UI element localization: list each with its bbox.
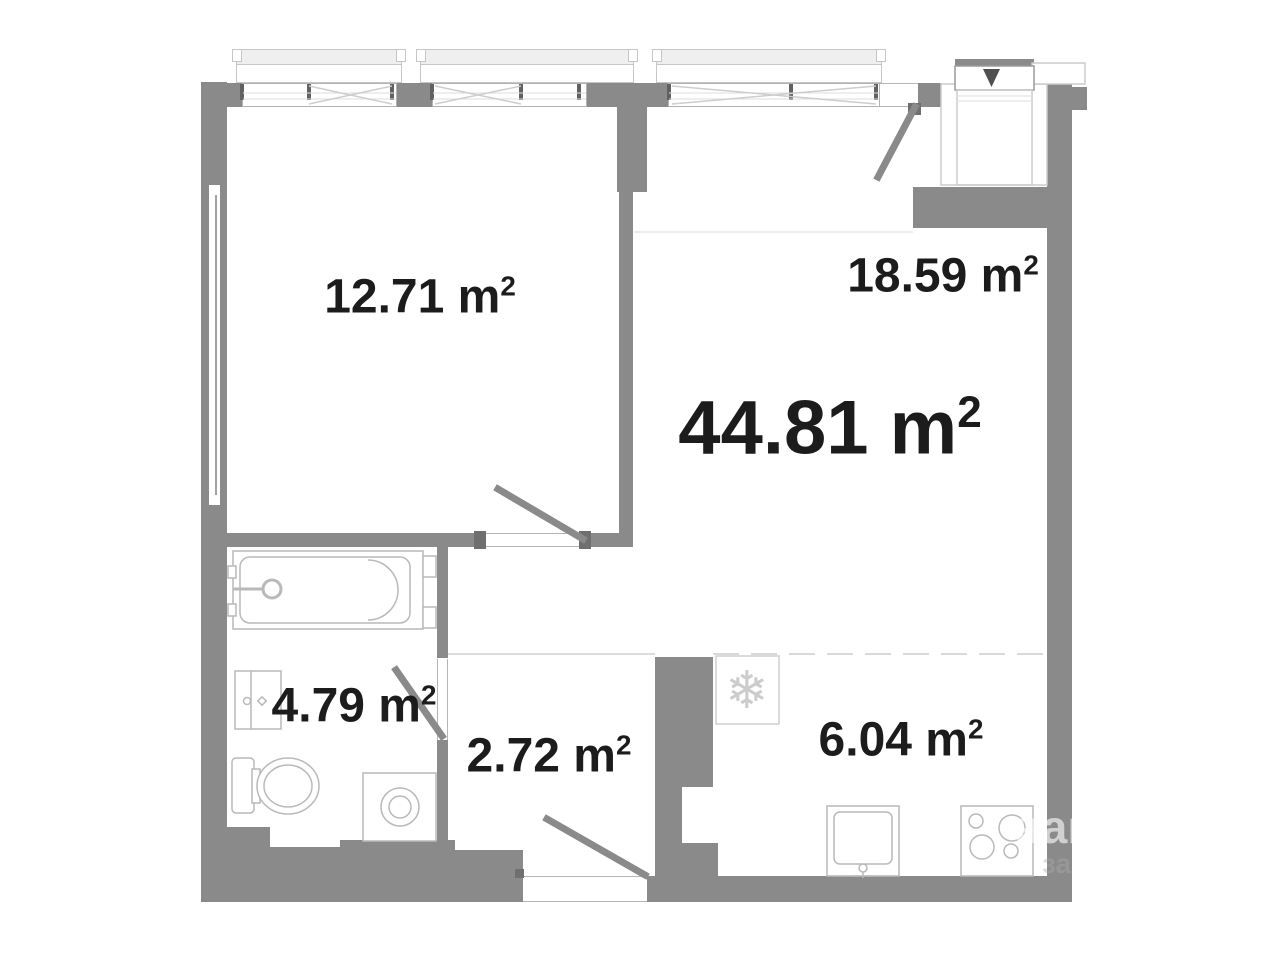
- watermark-fragment: за: [1042, 848, 1071, 880]
- kitchen-area-value: 6.04 m: [819, 714, 968, 767]
- hallway-area-sup: 2: [616, 730, 631, 761]
- hallway-area-label: 2.72 m2: [467, 729, 632, 784]
- kitchen-sink-icon: [827, 806, 899, 878]
- bedroom-area-label: 12.71 m2: [324, 270, 516, 325]
- toilet-icon: [232, 758, 319, 814]
- total-area-label: 44.81 m2: [678, 385, 981, 472]
- total-area-value: 44.81 m: [678, 386, 957, 471]
- bathroom-area-value: 4.79 m: [272, 680, 421, 733]
- vent-shaft: [941, 63, 1085, 185]
- window-casement-marks: [243, 86, 879, 104]
- bathroom-area-label: 4.79 m2: [272, 679, 437, 734]
- watermark-fragment: нап: [1014, 800, 1095, 854]
- fridge-snowflake-icon: ❄: [725, 665, 769, 717]
- bathroom-area-sup: 2: [421, 680, 436, 711]
- bathtub-icon: [228, 551, 436, 629]
- balcony-door-leaf: [878, 107, 915, 177]
- total-area-sup: 2: [957, 388, 982, 437]
- kitchen-area-label: 6.04 m2: [819, 713, 984, 768]
- bedroom-area-value: 12.71 m: [324, 271, 500, 324]
- hallway-area-value: 2.72 m: [467, 730, 616, 783]
- floor-plan: ❄ 12.71 m2 18.59 m2 44.81 m2 4.79 m2 2.7…: [0, 0, 1280, 960]
- living-area-value: 18.59 m: [847, 250, 1023, 303]
- living-area-sup: 2: [1023, 250, 1038, 281]
- bedroom-area-sup: 2: [500, 271, 515, 302]
- kitchen-area-sup: 2: [968, 714, 983, 745]
- washing-machine-icon: [363, 773, 436, 841]
- bedroom-door-leaf: [498, 489, 583, 539]
- living-area-label: 18.59 m2: [847, 249, 1039, 304]
- entrance-door-leaf: [547, 819, 645, 875]
